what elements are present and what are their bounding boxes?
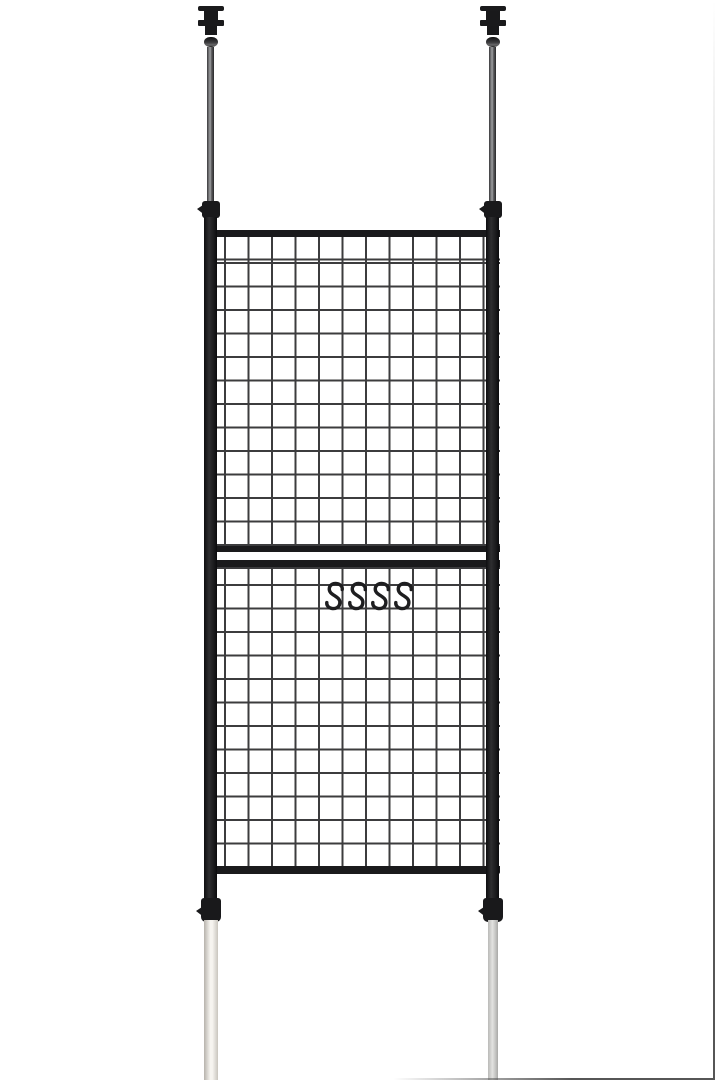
upper-tension-pole-left: [207, 47, 214, 205]
height-clamp-bottom-right: [483, 898, 503, 922]
cap-neck-right: [486, 11, 500, 20]
bottom-extension-pole-left: [204, 920, 218, 1080]
product-photo: [0, 0, 715, 1080]
height-clamp-top-left: [202, 201, 220, 218]
side-frame-pole-left: [204, 217, 217, 903]
wire-mesh-panel-upper: [205, 237, 500, 546]
wire-grid-panel: [205, 230, 500, 874]
panel-bottom-frame-bar: [205, 866, 500, 874]
cap-collar-left: [204, 37, 218, 47]
panel-top-frame-bar: [205, 230, 500, 237]
cap-neck-left: [204, 11, 218, 20]
cap-block-left: [205, 26, 217, 35]
panel-divider-bar-lower: [205, 560, 500, 567]
height-clamp-top-right: [484, 201, 502, 218]
upper-tension-pole-right: [489, 47, 496, 205]
bottom-extension-pole-right: [488, 920, 498, 1080]
height-clamp-bottom-left: [201, 898, 221, 922]
panel-divider-bar-upper: [205, 546, 500, 552]
cap-collar-right: [486, 37, 500, 47]
side-frame-pole-right: [486, 217, 499, 903]
cap-block-right: [487, 26, 499, 35]
wire-mesh-panel-lower: [205, 567, 500, 866]
